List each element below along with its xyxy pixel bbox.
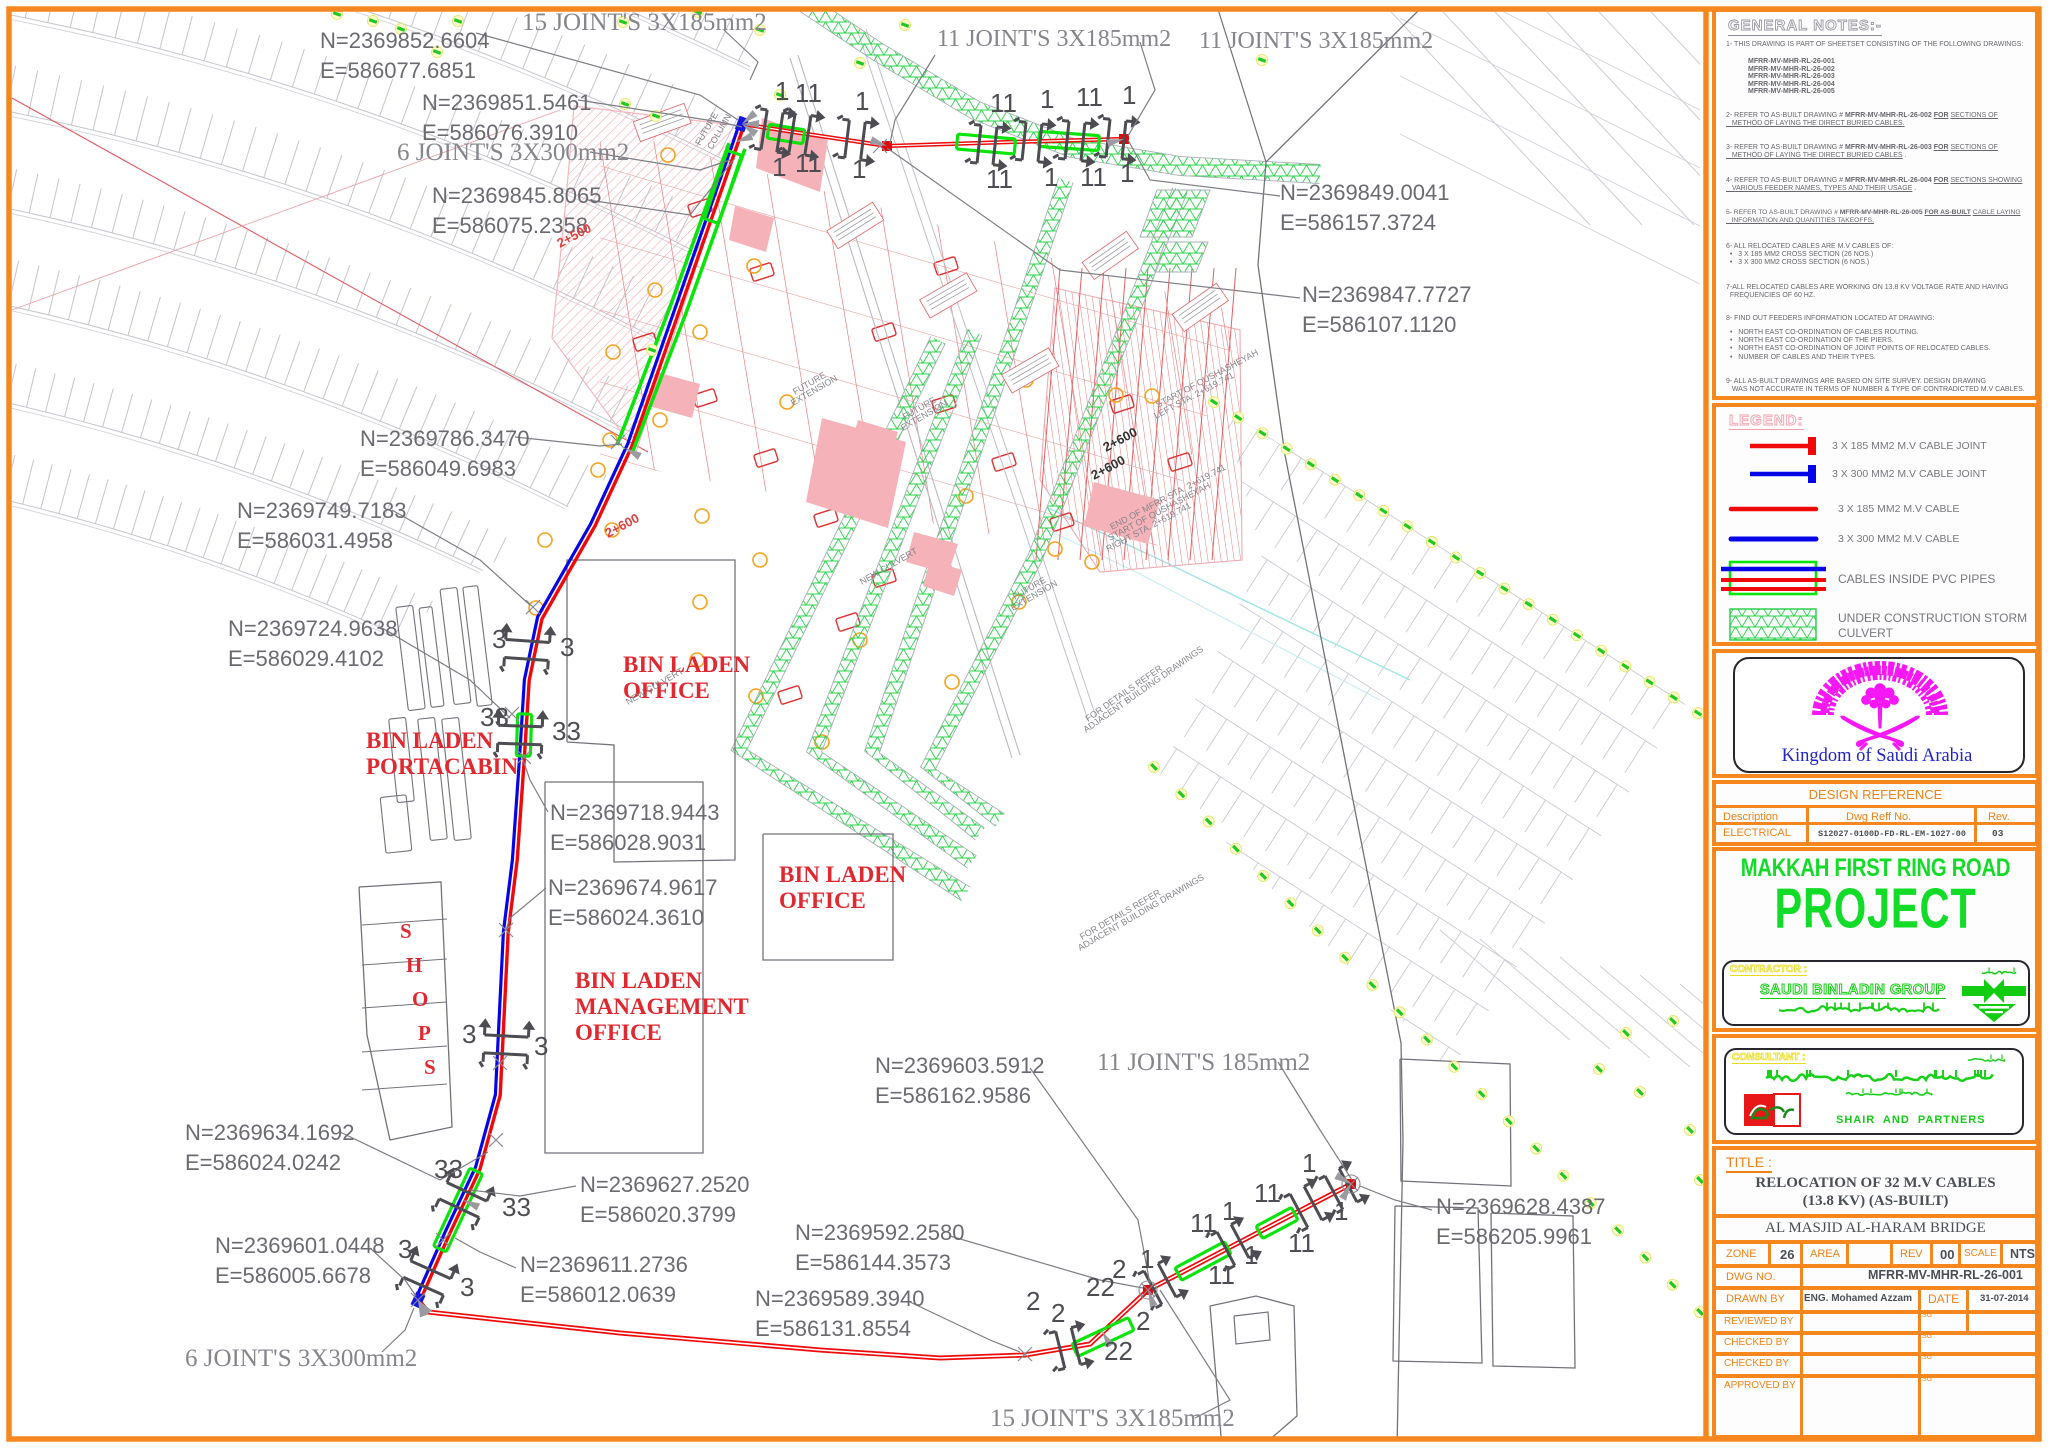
svg-text:N=2369845.8065: N=2369845.8065	[432, 183, 601, 208]
svg-text:OFFICE: OFFICE	[779, 888, 866, 913]
svg-text:33: 33	[502, 1192, 531, 1222]
svg-text:6 JOINT'S 3X300mm2: 6 JOINT'S 3X300mm2	[397, 139, 629, 166]
svg-text:PORTACABIN: PORTACABIN	[366, 754, 518, 779]
svg-text:1: 1	[1140, 1244, 1154, 1274]
svg-text:Kingdom of Saudi Arabia: Kingdom of Saudi Arabia	[1782, 746, 1973, 766]
svg-text:11 JOINT'S 185mm2: 11 JOINT'S 185mm2	[1097, 1049, 1310, 1076]
svg-text:33: 33	[552, 716, 581, 746]
svg-text:1: 1	[1222, 1196, 1236, 1226]
svg-text:E=586020.3799: E=586020.3799	[580, 1202, 736, 1227]
svg-text:2: 2	[1112, 1254, 1126, 1284]
svg-text:1: 1	[772, 152, 786, 182]
svg-text:1: 1	[1044, 162, 1058, 192]
svg-text:BIN LADEN: BIN LADEN	[623, 652, 751, 677]
svg-text:11: 11	[1254, 1178, 1281, 1208]
svg-text:3: 3	[398, 1234, 412, 1264]
svg-text:11: 11	[990, 88, 1017, 118]
svg-text:3: 3	[492, 624, 506, 654]
svg-text:11 JOINT'S 3X185mm2: 11 JOINT'S 3X185mm2	[937, 26, 1171, 52]
svg-text:11: 11	[1190, 1208, 1217, 1238]
svg-text:1: 1	[1244, 1240, 1258, 1270]
svg-text:11: 11	[1288, 1228, 1315, 1258]
svg-text:P: P	[418, 1021, 431, 1045]
svg-text:1: 1	[1122, 80, 1136, 110]
svg-text:E=586031.4958: E=586031.4958	[237, 528, 393, 553]
svg-text:15 JOINT'S 3X185mm2: 15 JOINT'S 3X185mm2	[522, 9, 767, 36]
svg-text:3: 3	[534, 1031, 548, 1061]
svg-text:N=2369786.3470: N=2369786.3470	[360, 426, 529, 451]
svg-text:E=586131.8554: E=586131.8554	[755, 1316, 911, 1341]
svg-text:1: 1	[852, 154, 866, 184]
svg-text:11 JOINT'S 3X185mm2: 11 JOINT'S 3X185mm2	[1199, 28, 1433, 54]
svg-text:E=586162.9586: E=586162.9586	[875, 1083, 1031, 1108]
svg-text:6 JOINT'S 3X300mm2: 6 JOINT'S 3X300mm2	[185, 1345, 417, 1372]
svg-text:E=586049.6983: E=586049.6983	[360, 456, 516, 481]
svg-text:1: 1	[1120, 158, 1134, 188]
svg-text:N=2369674.9617: N=2369674.9617	[548, 875, 717, 900]
svg-text:N=2369849.0041: N=2369849.0041	[1280, 180, 1449, 205]
svg-text:E=586028.9031: E=586028.9031	[550, 830, 706, 855]
svg-text:3: 3	[460, 1272, 474, 1302]
svg-text:1: 1	[855, 86, 869, 116]
svg-text:E=586157.3724: E=586157.3724	[1280, 210, 1436, 235]
svg-text:1: 1	[1040, 84, 1054, 114]
svg-text:E=586012.0639: E=586012.0639	[520, 1282, 676, 1307]
svg-text:11: 11	[1076, 82, 1103, 112]
svg-text:BIN LADEN: BIN LADEN	[575, 968, 703, 993]
svg-text:N=2369847.7727: N=2369847.7727	[1302, 282, 1471, 307]
svg-text:N=2369592.2580: N=2369592.2580	[795, 1220, 964, 1245]
svg-text:11: 11	[795, 78, 822, 108]
svg-text:N=2369611.2736: N=2369611.2736	[520, 1252, 688, 1277]
svg-text:OFFICE: OFFICE	[575, 1020, 662, 1045]
svg-text:E=586144.3573: E=586144.3573	[795, 1250, 951, 1275]
svg-text:33: 33	[434, 1154, 463, 1184]
svg-text:E=586005.6678: E=586005.6678	[215, 1263, 371, 1288]
svg-text:3: 3	[560, 632, 574, 662]
svg-text:15 JOINT'S 3X185mm2: 15 JOINT'S 3X185mm2	[990, 1405, 1235, 1432]
svg-text:3: 3	[462, 1019, 476, 1049]
svg-text:E=586077.6851: E=586077.6851	[320, 58, 476, 83]
svg-text:E=586024.0242: E=586024.0242	[185, 1150, 341, 1175]
svg-text:1: 1	[1302, 1148, 1316, 1178]
svg-text:E=586024.3610: E=586024.3610	[548, 905, 704, 930]
svg-text:N=2369601.0448: N=2369601.0448	[215, 1233, 384, 1258]
svg-text:11: 11	[1208, 1260, 1235, 1290]
svg-text:2: 2	[1026, 1286, 1040, 1316]
svg-text:E=586029.4102: E=586029.4102	[228, 646, 384, 671]
svg-text:1: 1	[1334, 1196, 1348, 1226]
svg-text:BIN LADEN: BIN LADEN	[779, 862, 907, 887]
svg-text:33: 33	[480, 702, 509, 732]
svg-text:E=586107.1120: E=586107.1120	[1302, 312, 1456, 337]
svg-text:N=2369718.9443: N=2369718.9443	[550, 800, 719, 825]
svg-text:N=2369749.7183: N=2369749.7183	[237, 498, 406, 523]
svg-text:MANAGEMENT: MANAGEMENT	[575, 994, 749, 1019]
svg-text:11: 11	[986, 164, 1013, 194]
svg-text:S: S	[424, 1055, 436, 1079]
svg-text:N=2369634.1692: N=2369634.1692	[185, 1120, 354, 1145]
svg-text:2: 2	[1136, 1306, 1150, 1336]
svg-text:1: 1	[775, 76, 789, 106]
svg-text:N=2369628.4387: N=2369628.4387	[1436, 1194, 1605, 1219]
svg-text:O: O	[412, 987, 428, 1011]
svg-text:E=586205.9961: E=586205.9961	[1436, 1224, 1592, 1249]
svg-text:BIN LADEN: BIN LADEN	[366, 728, 494, 753]
svg-text:N=2369589.3940: N=2369589.3940	[755, 1286, 924, 1311]
svg-text:N=2369627.2520: N=2369627.2520	[580, 1172, 749, 1197]
svg-text:H: H	[406, 953, 422, 977]
svg-text:11: 11	[1080, 162, 1107, 192]
svg-text:N=2369852.6604: N=2369852.6604	[320, 28, 489, 53]
svg-text:11: 11	[795, 148, 822, 178]
svg-text:N=2369851.5461: N=2369851.5461	[422, 90, 591, 115]
svg-text:22: 22	[1086, 1272, 1115, 1302]
svg-text:S: S	[400, 919, 412, 943]
svg-text:N=2369603.5912: N=2369603.5912	[875, 1053, 1044, 1078]
svg-text:22: 22	[1104, 1336, 1133, 1366]
svg-text:2: 2	[1051, 1298, 1065, 1328]
svg-text:N=2369724.9638: N=2369724.9638	[228, 616, 397, 641]
